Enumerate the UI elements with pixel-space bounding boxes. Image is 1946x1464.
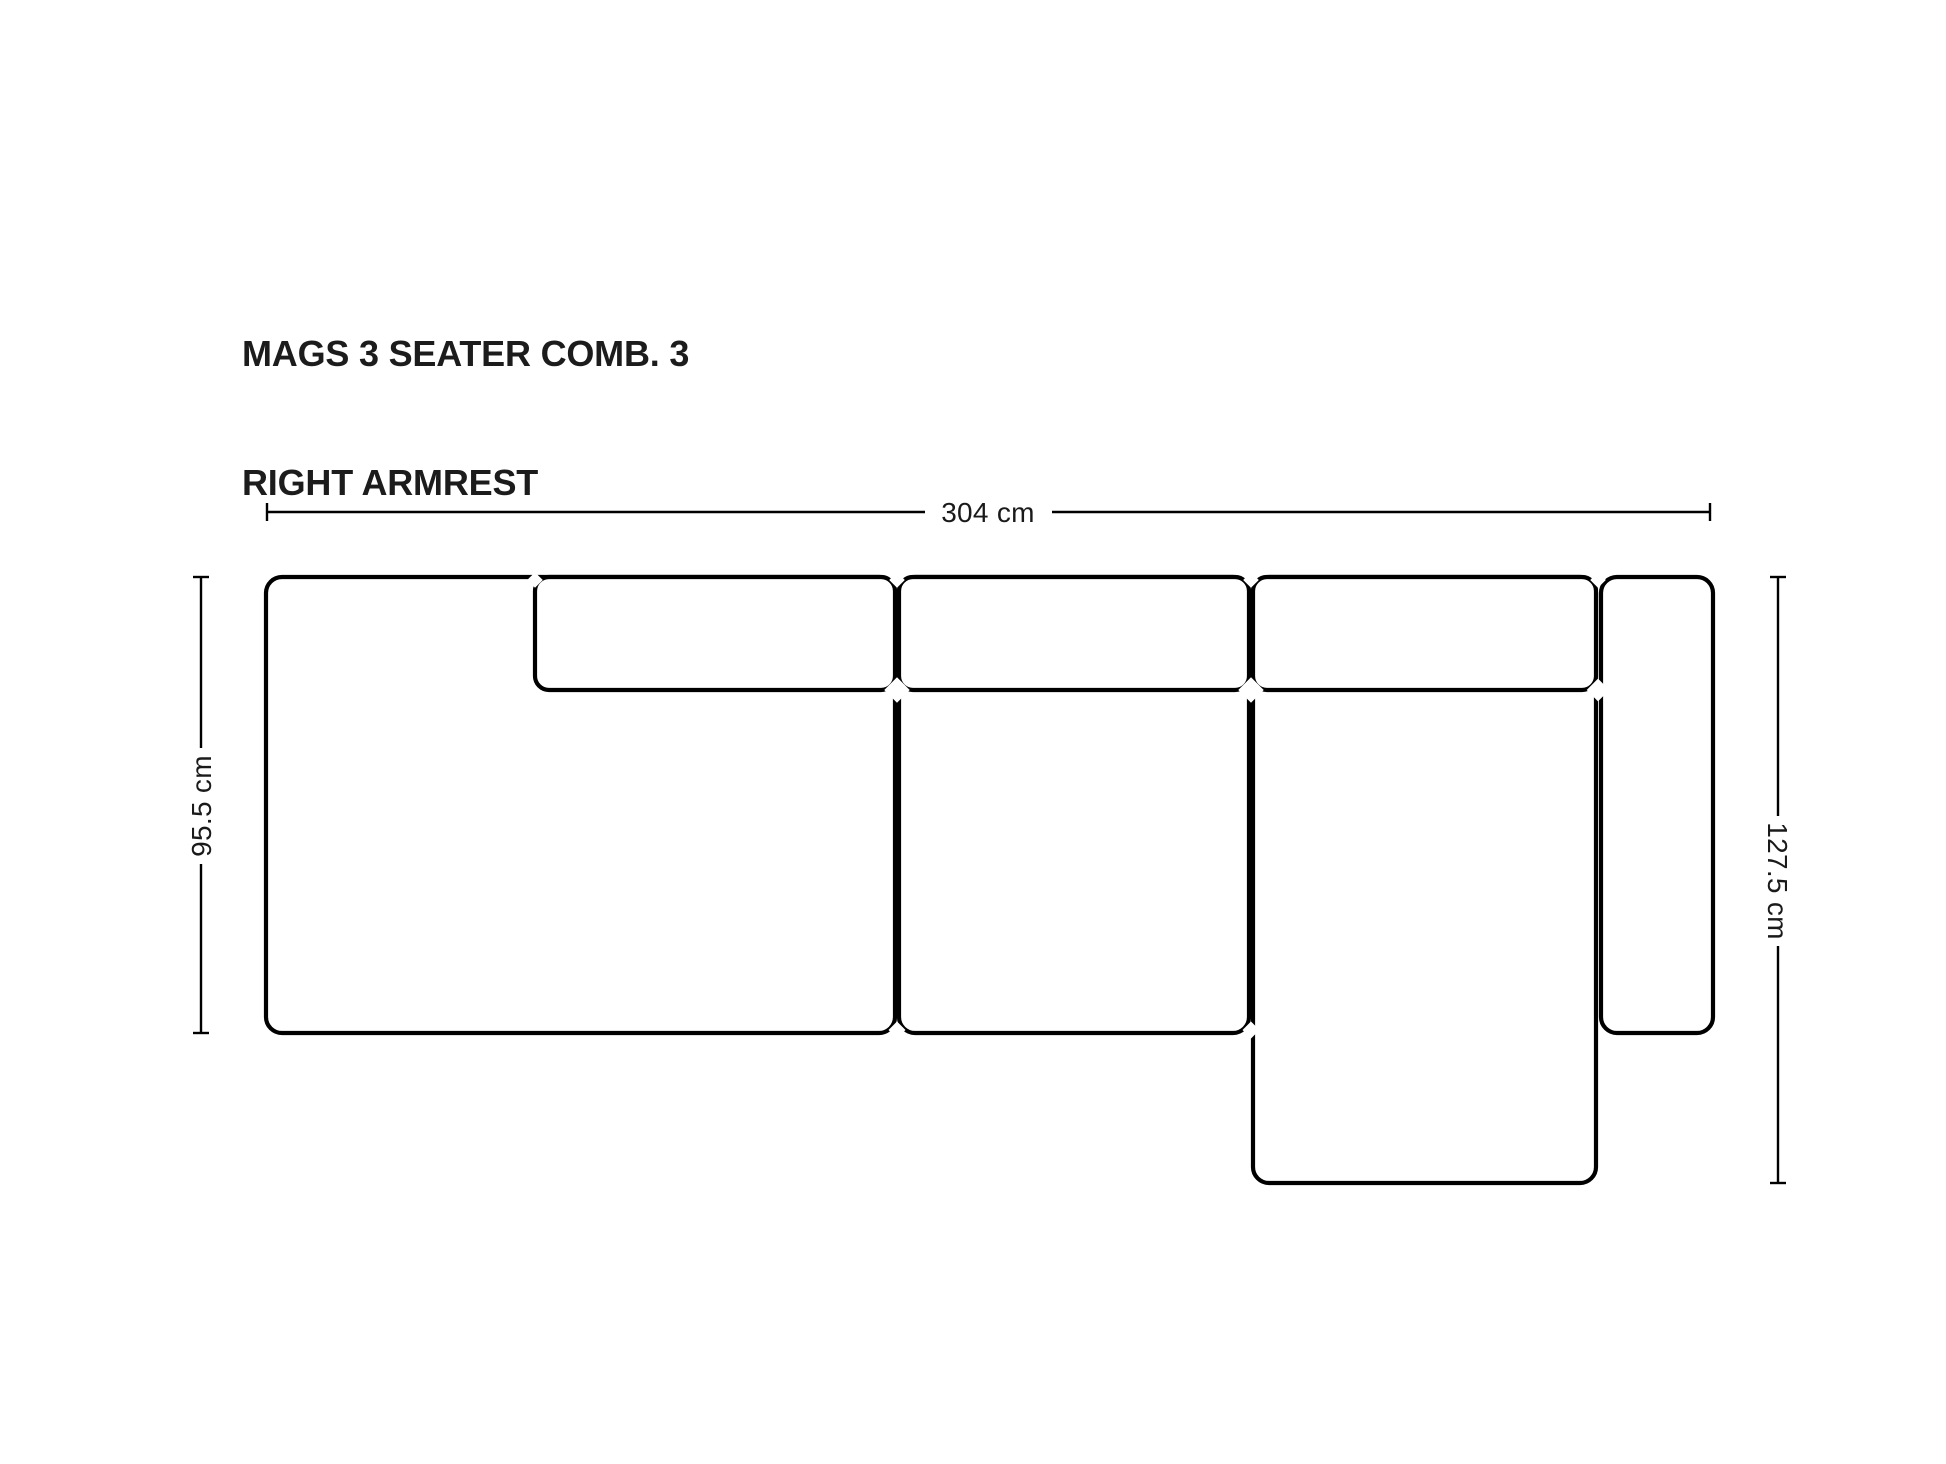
sofa-outline-group	[266, 572, 1713, 1183]
seat-depth-label: 95.5 cm	[186, 755, 217, 857]
width-dimension-label: 304 cm	[941, 497, 1035, 528]
sofa-dimension-diagram-page: MAGS 3 SEATER COMB. 3 RIGHT ARMREST	[0, 0, 1946, 1464]
back-cushion-middle-outline	[899, 577, 1249, 690]
width-dimension: 304 cm	[267, 497, 1710, 528]
seat-depth-dimension: 95.5 cm	[186, 577, 217, 1033]
back-cushion-left-outline	[535, 577, 895, 690]
right-armrest-outline	[1601, 577, 1713, 1033]
chaise-depth-label: 127.5 cm	[1762, 822, 1793, 940]
sofa-top-view-drawing: 304 cm 95.5 cm 127.5 cm	[0, 0, 1946, 1464]
chaise-depth-dimension: 127.5 cm	[1762, 577, 1793, 1183]
back-cushion-right-outline	[1253, 577, 1596, 690]
